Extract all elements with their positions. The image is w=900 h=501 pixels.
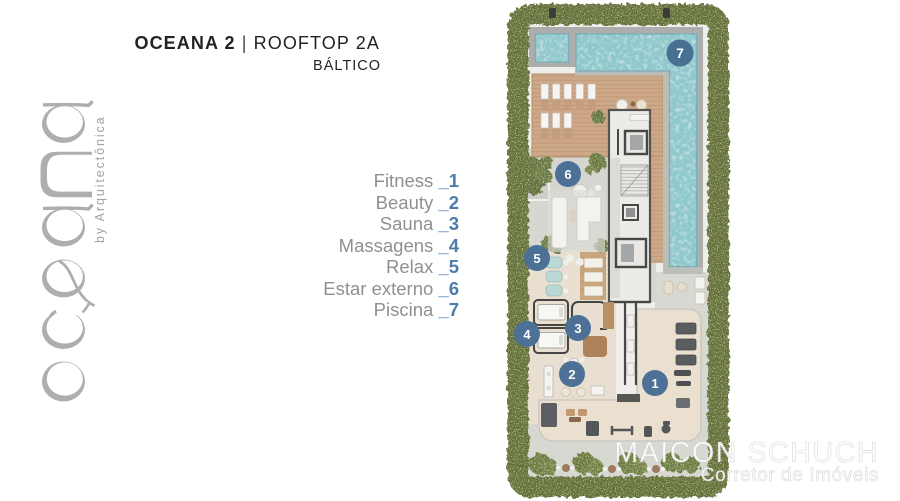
svg-text:2: 2	[568, 367, 575, 382]
svg-text:6: 6	[564, 167, 571, 182]
svg-text:3: 3	[574, 321, 581, 336]
svg-text:7: 7	[676, 46, 684, 61]
svg-text:4: 4	[523, 327, 531, 342]
svg-text:1: 1	[651, 376, 658, 391]
svg-text:5: 5	[533, 251, 540, 266]
svg-text:by Arquitectônica: by Arquitectônica	[93, 116, 107, 244]
svg-text:Corretor de Imóveis: Corretor de Imóveis	[701, 465, 879, 486]
